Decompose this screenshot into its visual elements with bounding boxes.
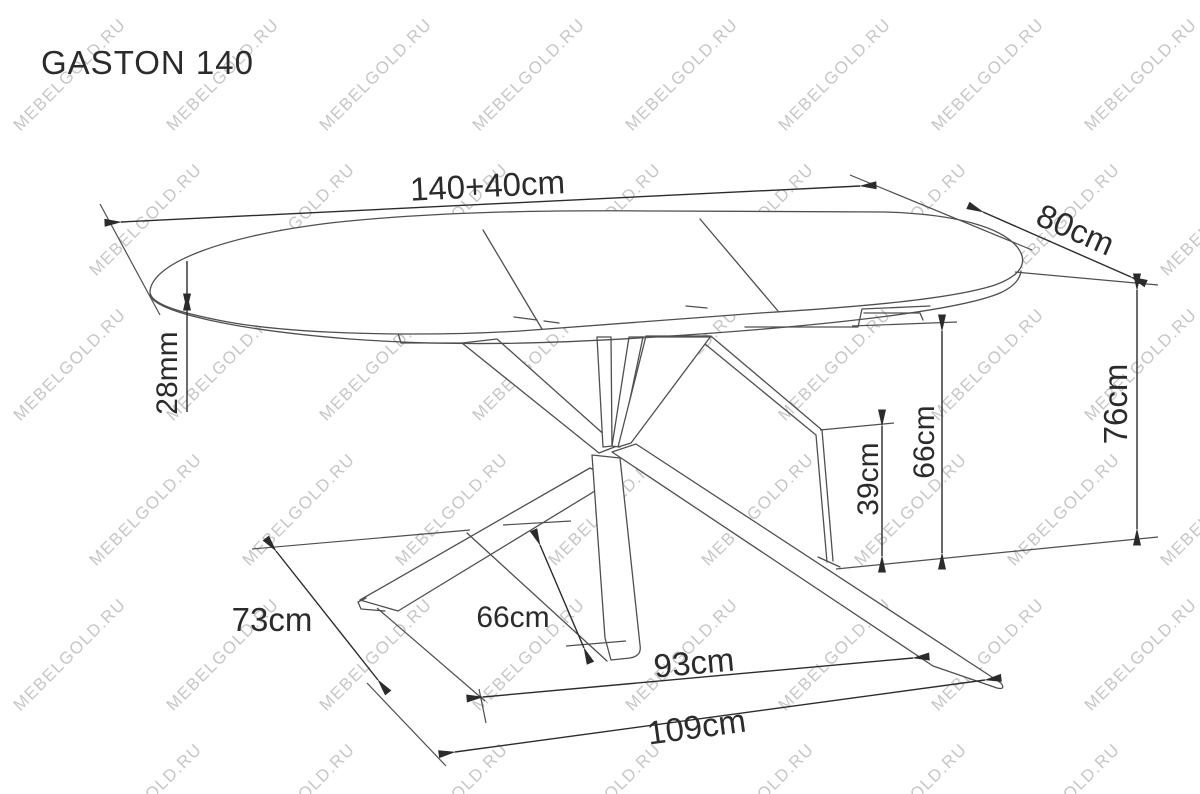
dim-label-height: 76cm bbox=[1097, 364, 1134, 445]
dim-label-base-depth: 73cm bbox=[232, 601, 313, 638]
spider-base bbox=[358, 336, 1003, 688]
front-strut bbox=[467, 533, 607, 661]
technical-drawing: 140+40cm 80cm 76cm 66cm 39cm 28mm 73cm 6… bbox=[0, 0, 1200, 794]
dim-label-length: 140+40cm bbox=[409, 163, 566, 208]
dim-label-leg-clearance: 39cm bbox=[852, 442, 885, 515]
tabletop bbox=[150, 211, 1023, 344]
front-leg bbox=[592, 455, 640, 660]
dim-label-base-diagonal: 66cm bbox=[476, 601, 549, 634]
left-leg bbox=[360, 468, 613, 611]
dim-label-span-inner: 93cm bbox=[652, 640, 736, 684]
page-title: GASTON 140 bbox=[41, 44, 254, 82]
arm-up-left bbox=[462, 339, 617, 453]
dim-label-frame-height: 66cm bbox=[908, 405, 941, 478]
rear-leg-rod bbox=[705, 337, 840, 567]
dim-label-top-thickness: 28mm bbox=[151, 331, 184, 414]
dim-label-span-outer: 109cm bbox=[645, 702, 748, 752]
diagram-page: MEBELGOLD.RUMEBELGOLD.RUMEBELGOLD.RUMEBE… bbox=[0, 0, 1200, 794]
